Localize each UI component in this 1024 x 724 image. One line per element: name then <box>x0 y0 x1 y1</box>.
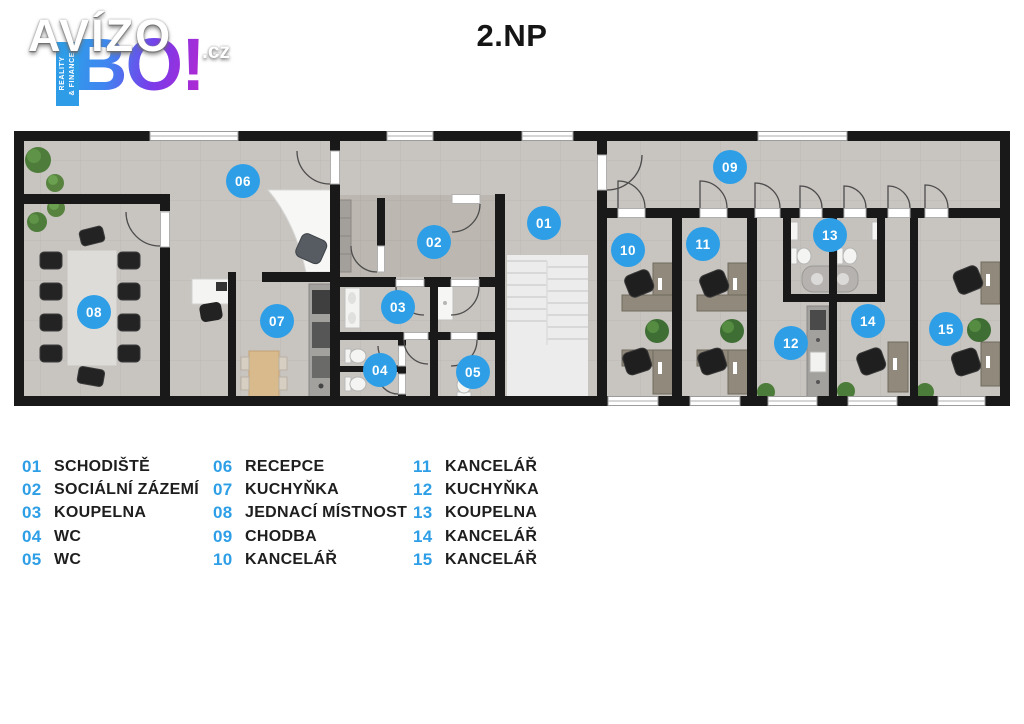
legend-label: KANCELÁŘ <box>245 551 337 569</box>
legend-number: 14 <box>413 527 445 547</box>
legend-column-1: 01SCHODIŠTĚ02SOCIÁLNÍ ZÁZEMÍ03KOUPELNA04… <box>22 455 199 572</box>
legend-item-10: 10KANCELÁŘ <box>213 549 407 572</box>
legend-label: KANCELÁŘ <box>445 458 537 476</box>
legend-column-2: 06RECEPCE07KUCHYŇKA08JEDNACÍ MÍSTNOST09C… <box>213 455 407 572</box>
room-marker-12: 12 <box>774 326 808 360</box>
legend-number: 12 <box>413 480 445 500</box>
legend-label: RECEPCE <box>245 458 324 476</box>
legend-column-3: 11KANCELÁŘ12KUCHYŇKA13KOUPELNA14KANCELÁŘ… <box>413 455 539 572</box>
room-marker-02: 02 <box>417 225 451 259</box>
floor-plan-page: REALITY & FINANCE BO! AVÍZO .cz 2.NP <box>0 0 1024 724</box>
legend-number: 09 <box>213 527 245 547</box>
legend-label: CHODBA <box>245 528 317 546</box>
legend-item-14: 14KANCELÁŘ <box>413 525 539 548</box>
legend-label: KOUPELNA <box>445 504 537 522</box>
legend-label: KANCELÁŘ <box>445 551 537 569</box>
avizo-wordmark: AVÍZO <box>28 10 172 62</box>
legend-label: KUCHYŇKA <box>445 481 539 499</box>
legend-item-11: 11KANCELÁŘ <box>413 455 539 478</box>
kitchenette-12 <box>807 306 829 402</box>
room-marker-15: 15 <box>929 312 963 346</box>
legend-item-07: 07KUCHYŇKA <box>213 478 407 501</box>
legend-number: 04 <box>22 527 54 547</box>
legend-label: WC <box>54 528 81 546</box>
room-marker-09: 09 <box>713 150 747 184</box>
avizo-tld: .cz <box>202 40 230 64</box>
room-marker-03: 03 <box>381 290 415 324</box>
room-marker-13: 13 <box>813 218 847 252</box>
legend-number: 06 <box>213 457 245 477</box>
room-marker-11: 11 <box>686 227 720 261</box>
legend-item-15: 15KANCELÁŘ <box>413 549 539 572</box>
legend-number: 13 <box>413 503 445 523</box>
legend-label: KOUPELNA <box>54 504 146 522</box>
legend-item-13: 13KOUPELNA <box>413 502 539 525</box>
staircase <box>507 255 588 402</box>
legend-number: 02 <box>22 480 54 500</box>
legend-label: JEDNACÍ MÍSTNOST <box>245 504 407 522</box>
legend-number: 05 <box>22 550 54 570</box>
legend-label: KUCHYŇKA <box>245 481 339 499</box>
legend-item-12: 12KUCHYŇKA <box>413 478 539 501</box>
legend-label: SCHODIŠTĚ <box>54 458 150 476</box>
legend-label: SOCIÁLNÍ ZÁZEMÍ <box>54 481 199 499</box>
room-marker-14: 14 <box>851 304 885 338</box>
legend-item-05: 05WC <box>22 549 199 572</box>
room-marker-01: 01 <box>527 206 561 240</box>
room-marker-10: 10 <box>611 233 645 267</box>
legend-item-04: 04WC <box>22 525 199 548</box>
legend-number: 03 <box>22 503 54 523</box>
legend-item-06: 06RECEPCE <box>213 455 407 478</box>
legend-number: 07 <box>213 480 245 500</box>
room-marker-06: 06 <box>226 164 260 198</box>
legend-number: 15 <box>413 550 445 570</box>
legend-number: 08 <box>213 503 245 523</box>
legend-item-03: 03KOUPELNA <box>22 502 199 525</box>
legend-number: 01 <box>22 457 54 477</box>
room-marker-04: 04 <box>363 353 397 387</box>
legend-label: KANCELÁŘ <box>445 528 537 546</box>
room-marker-07: 07 <box>260 304 294 338</box>
legend-number: 10 <box>213 550 245 570</box>
legend-item-09: 09CHODBA <box>213 525 407 548</box>
legend-number: 11 <box>413 457 445 477</box>
legend-item-01: 01SCHODIŠTĚ <box>22 455 199 478</box>
floor-plan-drawing <box>0 0 1024 724</box>
legend-label: WC <box>54 551 81 569</box>
room-marker-05: 05 <box>456 355 490 389</box>
legend-item-08: 08JEDNACÍ MÍSTNOST <box>213 502 407 525</box>
legend-item-02: 02SOCIÁLNÍ ZÁZEMÍ <box>22 478 199 501</box>
room-marker-08: 08 <box>77 295 111 329</box>
